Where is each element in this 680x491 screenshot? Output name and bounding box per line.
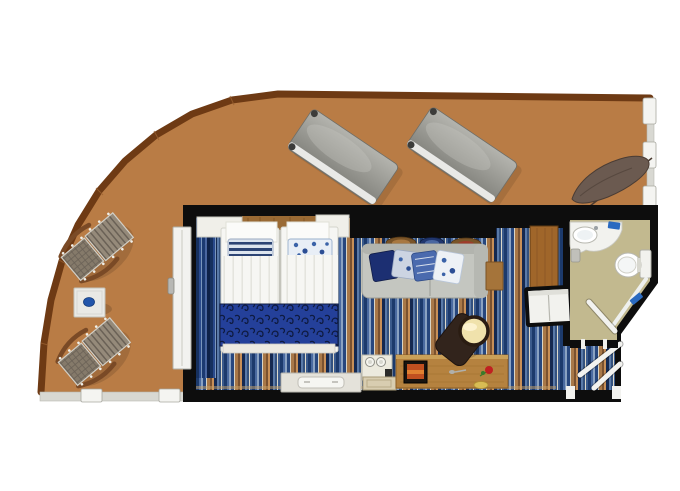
luggage-bench — [281, 373, 361, 392]
door-jamb — [566, 386, 575, 399]
waste-bin — [571, 249, 580, 262]
floor-plan-svg — [0, 0, 680, 491]
sofa-cushion — [433, 250, 465, 284]
tv — [404, 361, 427, 383]
railing-post — [643, 98, 656, 124]
bathroom — [570, 220, 651, 349]
spoon — [449, 370, 455, 374]
coffee-table — [486, 262, 503, 290]
wardrobe — [526, 287, 572, 325]
fruit-dish — [474, 382, 488, 389]
duvet — [282, 255, 338, 308]
cabin — [168, 205, 658, 402]
railing-post — [81, 389, 102, 402]
duvet — [222, 256, 278, 308]
sofa — [362, 244, 488, 298]
foot-runner — [220, 304, 338, 346]
closet — [530, 226, 558, 288]
door-jamb — [603, 339, 607, 349]
faucet — [594, 226, 598, 230]
sofa-alcove-wall — [350, 218, 496, 238]
stool-cushion — [460, 317, 488, 345]
door-jamb — [612, 386, 621, 399]
curtain — [196, 220, 216, 378]
bathroom-wall — [606, 340, 618, 348]
stateroom-floor-plan — [0, 0, 680, 491]
turned-sheet — [287, 222, 329, 240]
minibar — [362, 355, 396, 390]
bed-foot-board — [223, 344, 335, 353]
door-jamb — [581, 339, 585, 349]
table-decor — [84, 298, 95, 307]
door-handle — [168, 278, 174, 294]
railing-post — [159, 389, 180, 402]
